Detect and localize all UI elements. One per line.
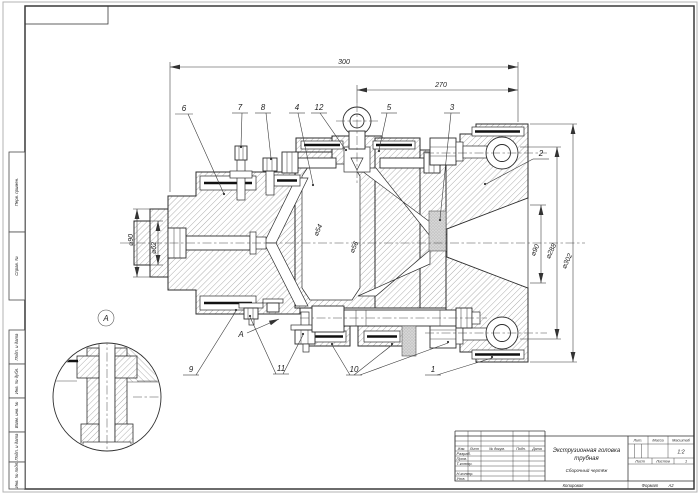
dim-300-label: 300: [338, 59, 350, 66]
svg-text:10: 10: [350, 365, 359, 374]
frame-label-podp-data-1: Подп. и дата: [14, 333, 19, 361]
top-bolt-left-head: [282, 152, 298, 173]
tb-title-line1: Экструзионная головка: [553, 448, 621, 454]
frame-label-vzam-inv: Взам. инв. №: [14, 401, 19, 428]
tb-lit-label: Лит.: [633, 439, 643, 443]
tb-format-label: Формат: [642, 483, 659, 488]
tb-col-dokum: № докум.: [489, 447, 505, 451]
tb-sheets-label: Листов: [655, 460, 670, 464]
frame-label-podp-data-2: Подп. и дата: [14, 433, 19, 461]
rod-block: [312, 306, 344, 332]
tb-sheet-label: Лист: [634, 460, 645, 464]
top-bolt-left-shaft: [298, 158, 336, 168]
svg-text:12: 12: [315, 103, 324, 112]
tb-mass-label: Масса: [652, 439, 663, 443]
svg-text:1: 1: [431, 365, 435, 374]
detail-label-text: А: [102, 314, 108, 323]
svg-text:2: 2: [538, 149, 544, 158]
frame-label-inv-dubl: Инв. № дубл.: [14, 368, 19, 394]
svg-text:8: 8: [261, 103, 266, 112]
svg-text:4: 4: [295, 103, 300, 112]
tb-row-utv: Утв.: [457, 476, 466, 481]
tb-doc-type: Сборочный чертёж: [566, 467, 609, 473]
tb-col-podp: Подп.: [516, 447, 526, 451]
tb-sheets-value: 1: [685, 460, 687, 464]
bottom-gray-stud: [402, 326, 416, 356]
tb-scale-value: 1:2: [677, 450, 684, 456]
svg-text:5: 5: [387, 103, 392, 112]
tb-row-tkontr: Т.контр.: [457, 461, 473, 466]
dim-270-label: 270: [434, 82, 447, 89]
tb-col-data: Дата: [531, 447, 541, 451]
frame-label-inv-podl: Инв. № подл.: [14, 462, 19, 489]
flange-bolt-top: [430, 138, 456, 165]
drawing-sheet: Перв. примен. Справ. № Подп. и дата Инв.…: [0, 0, 700, 495]
die-restrictor: [429, 211, 446, 251]
bottom-stud-2: [267, 303, 279, 312]
stud-8: [263, 158, 277, 171]
dim-d90-left-label: ⌀90: [128, 234, 135, 246]
frame-label-sprav: Справ. №: [14, 256, 19, 276]
svg-text:6: 6: [182, 104, 187, 113]
svg-text:9: 9: [189, 365, 194, 374]
core-cartridge: [302, 164, 360, 300]
bottom-stud-1: [244, 308, 258, 319]
tb-format-value: А2: [667, 483, 674, 488]
dim-d62-label: ⌀62: [151, 242, 158, 254]
frame-label-perv-primen: Перв. примен.: [14, 178, 19, 207]
stud-7: [235, 146, 247, 160]
svg-text:7: 7: [238, 103, 243, 112]
svg-text:3: 3: [450, 103, 455, 112]
tb-copied-label: Копировал: [563, 483, 584, 488]
top-bolt-right-shaft: [380, 158, 424, 168]
tb-scale-label: Масштаб: [672, 439, 691, 443]
tb-title-line2: трубная: [574, 456, 599, 462]
svg-text:А: А: [237, 330, 243, 339]
